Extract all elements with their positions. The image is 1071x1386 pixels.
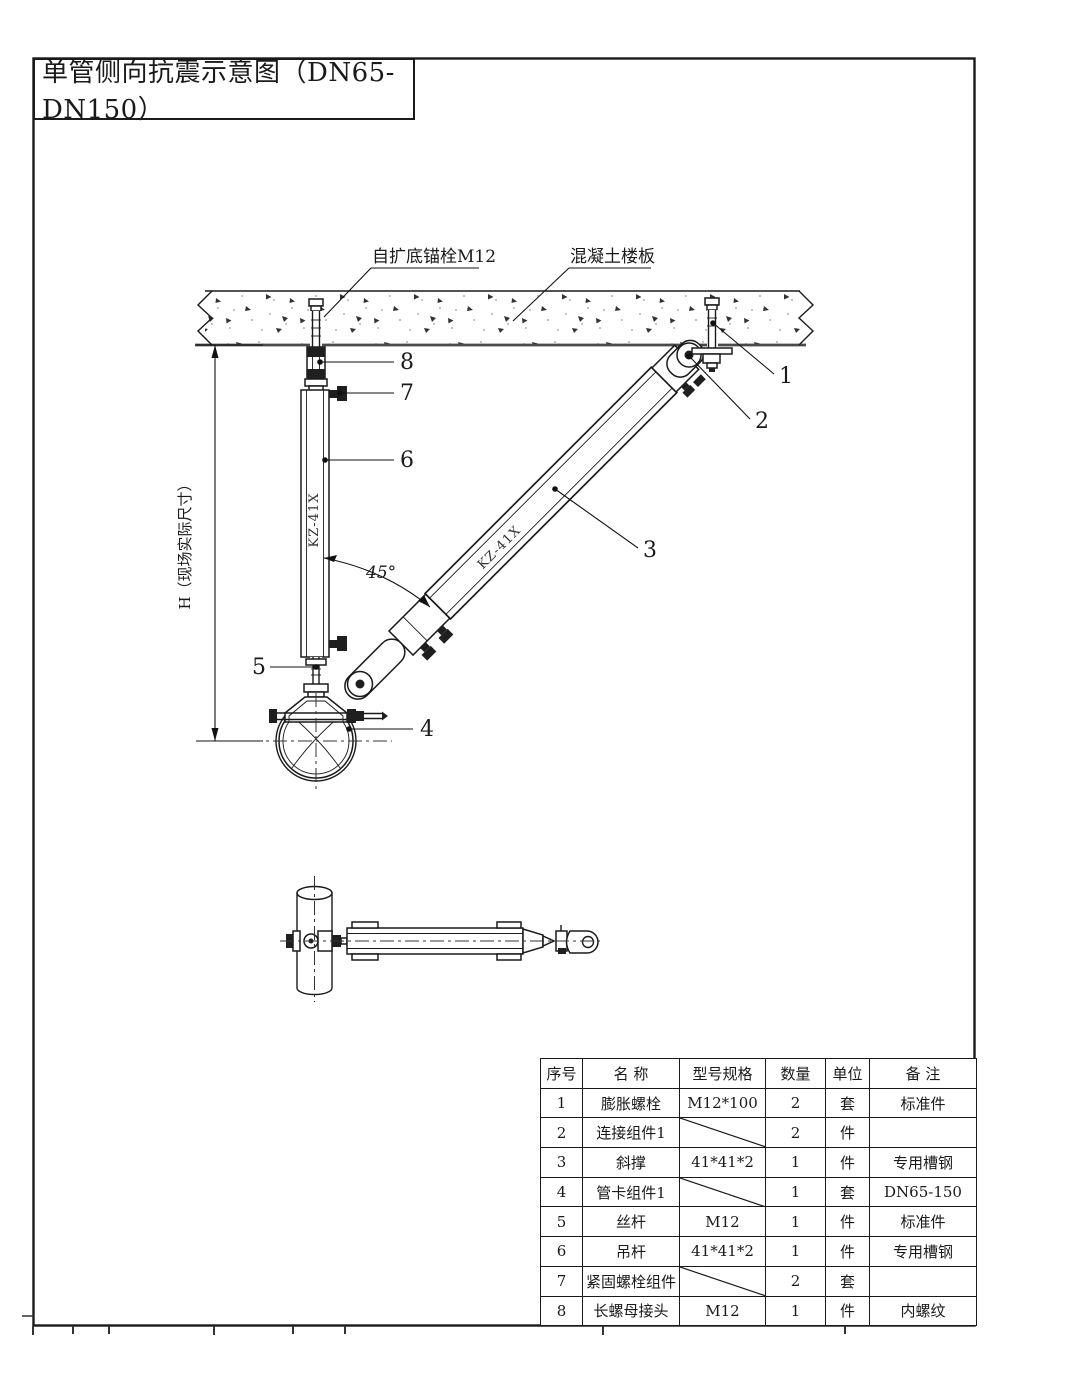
title-block: 单管侧向抗震示意图（DN65-DN150）: [33, 58, 415, 120]
col-header-index: 序号: [541, 1059, 583, 1089]
hanger-channel: KZ-41X: [301, 390, 329, 657]
anchor-bolt-left: [309, 299, 323, 347]
cell-num: 3: [541, 1148, 583, 1178]
cell-spec: M12: [680, 1207, 766, 1237]
cell-unit: 件: [826, 1207, 870, 1237]
long-nut-coupling: [305, 347, 327, 391]
cell-note: 标准件: [870, 1088, 977, 1118]
cell-note: 专用槽钢: [870, 1237, 977, 1267]
cell-name: 连接组件1: [583, 1118, 680, 1148]
cell-spec: 41*41*2: [680, 1237, 766, 1267]
cell-name: 紧固螺栓组件: [583, 1266, 680, 1296]
bom-header-row: 序号 名 称 型号规格 数量 单位 备 注: [541, 1059, 977, 1089]
cell-name: 长螺母接头: [583, 1296, 680, 1326]
cell-unit: 件: [826, 1118, 870, 1148]
dimension-H: H（现场实际尺寸）: [176, 345, 263, 741]
cell-unit: 件: [826, 1148, 870, 1178]
col-header-note: 备 注: [870, 1059, 977, 1089]
cell-unit: 件: [826, 1237, 870, 1267]
cell-num: 8: [541, 1296, 583, 1326]
cell-note: 标准件: [870, 1207, 977, 1237]
cell-note: [870, 1118, 977, 1148]
bom-row-7: 7 紧固螺栓组件 2 套: [541, 1266, 977, 1296]
callout-3: 3: [643, 538, 657, 563]
plan-end-connector: [556, 925, 598, 954]
cell-qty: 2: [766, 1118, 826, 1148]
callout-7: 7: [400, 381, 414, 406]
break-line-right: [799, 291, 813, 345]
callout-2: 2: [755, 409, 769, 434]
callout-4: 4: [420, 717, 434, 742]
cell-qty: 1: [766, 1207, 826, 1237]
fastening-bolt-lower: [329, 636, 347, 651]
concrete-slab: [195, 291, 813, 345]
angle-label: 45°: [365, 563, 396, 583]
cell-qty: 1: [766, 1296, 826, 1326]
cell-name: 管卡组件1: [583, 1177, 680, 1207]
bom-row-6: 6 吊杆 41*41*2 1 件 专用槽钢: [541, 1237, 977, 1267]
callout-1: 1: [779, 364, 793, 389]
bom-row-8: 8 长螺母接头 M12 1 件 内螺纹: [541, 1296, 977, 1326]
bom-row-2: 2 连接组件1 2 件: [541, 1118, 977, 1148]
bom-row-1: 1 膨胀螺栓 M12*100 2 套 标准件: [541, 1088, 977, 1118]
blank-cell-slash: [680, 1118, 765, 1147]
angle-annotation: 45°: [324, 555, 430, 607]
diagonal-brace: KZ-41X: [336, 332, 721, 717]
plan-view: [280, 876, 600, 1002]
cell-num: 5: [541, 1207, 583, 1237]
pipe-clamp: [248, 693, 392, 791]
bom-row-3: 3 斜撑 41*41*2 1 件 专用槽钢: [541, 1148, 977, 1178]
cell-name: 丝杆: [583, 1207, 680, 1237]
cell-num: 2: [541, 1118, 583, 1148]
cell-unit: 套: [826, 1088, 870, 1118]
cell-note: DN65-150: [870, 1177, 977, 1207]
col-header-unit: 单位: [826, 1059, 870, 1089]
cell-qty: 1: [766, 1148, 826, 1178]
col-header-qty: 数量: [766, 1059, 826, 1089]
bom-row-4: 4 管卡组件1 1 套 DN65-150: [541, 1177, 977, 1207]
cell-spec-blank: [680, 1266, 766, 1296]
cell-spec: M12: [680, 1296, 766, 1326]
cell-num: 1: [541, 1088, 583, 1118]
drawing-title: 单管侧向抗震示意图（DN65-DN150）: [42, 52, 413, 126]
cell-unit: 套: [826, 1177, 870, 1207]
cell-qty: 1: [766, 1177, 826, 1207]
cell-num: 7: [541, 1266, 583, 1296]
cell-name: 斜撑: [583, 1148, 680, 1178]
drawing-sheet: 自扩底锚栓M12 混凝土楼板 KZ-41X: [0, 0, 1071, 1386]
cell-spec: M12*100: [680, 1088, 766, 1118]
cell-qty: 2: [766, 1266, 826, 1296]
cell-spec: 41*41*2: [680, 1148, 766, 1178]
blank-cell-slash: [680, 1178, 765, 1207]
col-header-name: 名 称: [583, 1059, 680, 1089]
cell-note: [870, 1266, 977, 1296]
callout-6: 6: [400, 448, 414, 473]
cell-num: 6: [541, 1237, 583, 1267]
threaded-rod: [304, 657, 328, 697]
blank-cell-slash: [680, 1267, 765, 1296]
cell-note: 专用槽钢: [870, 1148, 977, 1178]
anchor-label-text: 自扩底锚栓M12: [372, 247, 496, 267]
cell-name: 膨胀螺栓: [583, 1088, 680, 1118]
cell-qty: 1: [766, 1237, 826, 1267]
cell-unit: 套: [826, 1266, 870, 1296]
bottom-hinge: [348, 672, 373, 697]
slab-label-text: 混凝土楼板: [570, 247, 655, 267]
cell-num: 4: [541, 1177, 583, 1207]
bom-table: 序号 名 称 型号规格 数量 单位 备 注 1 膨胀螺栓 M12*100 2 套…: [540, 1058, 977, 1326]
bom-row-5: 5 丝杆 M12 1 件 标准件: [541, 1207, 977, 1237]
cell-note: 内螺纹: [870, 1296, 977, 1326]
cell-spec-blank: [680, 1177, 766, 1207]
cell-spec-blank: [680, 1118, 766, 1148]
callout-5: 5: [252, 655, 266, 680]
cell-unit: 件: [826, 1296, 870, 1326]
hanger-channel-mark: KZ-41X: [307, 493, 322, 548]
cell-qty: 2: [766, 1088, 826, 1118]
col-header-spec: 型号规格: [680, 1059, 766, 1089]
callout-8: 8: [400, 350, 414, 375]
dimension-H-label: H（现场实际尺寸）: [176, 476, 194, 609]
cell-name: 吊杆: [583, 1237, 680, 1267]
